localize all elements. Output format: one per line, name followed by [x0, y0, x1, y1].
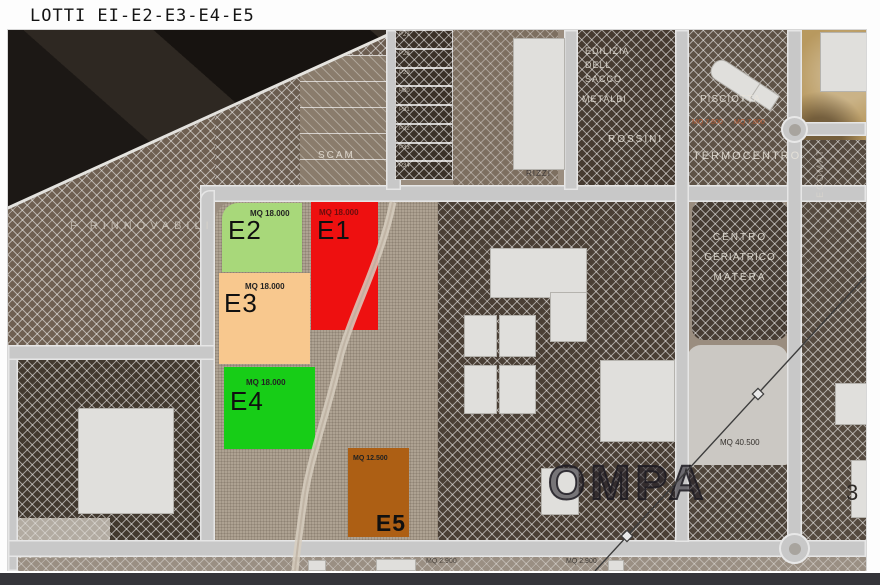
lot-id-label: E5	[376, 510, 406, 537]
roundabout-southeast	[779, 533, 810, 564]
shed-grid-4	[499, 365, 536, 414]
lot-area-label: MQ 12.500	[353, 455, 388, 462]
shed-south-strip-3	[608, 560, 624, 571]
lot-id-label: E2	[228, 215, 262, 246]
lot-E2: MQ 18.000 E2	[222, 203, 302, 272]
shed-south-strip-1	[376, 559, 416, 571]
p-lot-label: P33	[399, 145, 410, 151]
p-lot-label: P31	[399, 107, 410, 113]
label-mq-2900-b: MQ 2.900	[566, 558, 597, 565]
warehouse-center-top	[490, 248, 587, 298]
lot-E4: MQ 18.000 E4	[224, 367, 315, 449]
warehouse-rizzi	[513, 38, 565, 170]
p-lot-row: P28	[395, 49, 453, 68]
label-pisciotta: PISCIOTTA	[700, 94, 761, 105]
warehouse-center-ext	[550, 292, 587, 342]
label-edilizia-2: DELL	[585, 60, 612, 70]
p-lot-label: P30	[399, 88, 410, 94]
label-ompa-large: OMPA	[548, 456, 708, 511]
lot-E3: MQ 18.000 E3	[219, 273, 310, 364]
shed-grid-1	[464, 315, 497, 357]
label-mq-40500: MQ 40.500	[720, 438, 760, 447]
p-lot-row: P31	[395, 105, 453, 124]
label-edilizia-1: EDILIZIA	[585, 46, 630, 56]
e-lot-group: MQ 18.000 E1 MQ 18.000 E2 MQ 18.000 E3 M…	[215, 200, 438, 540]
label-centro-1: CENTRO	[692, 232, 788, 243]
p-lot-row: P32	[395, 124, 453, 143]
p-lot-label: P32	[399, 126, 410, 132]
p-lot-label: P27	[399, 32, 410, 38]
p-lot-row: P34	[395, 161, 453, 180]
lot-id-label: E1	[317, 215, 351, 246]
road-west-of-lots	[200, 190, 215, 557]
bottom-dark-bar	[0, 571, 880, 585]
label-mq-7800-a: MQ 7.800	[692, 119, 723, 126]
p-lot-label: P34	[399, 163, 410, 169]
label-centro-3: MATERA	[692, 272, 788, 283]
label-rossini: ROSSINI	[608, 134, 663, 145]
label-edilizia-3: SACCO	[585, 74, 622, 84]
lot-E5: MQ 12.500 E5	[348, 448, 409, 537]
label-right-3: 3	[846, 480, 858, 506]
road-east-vertical	[787, 30, 802, 542]
block-centro-geriatrico	[692, 200, 788, 340]
page-title: LOTTI EI-E2-E3-E4-E5	[30, 6, 255, 26]
label-ecomat: ECOMAT	[815, 143, 825, 203]
warehouse-southwest	[78, 408, 174, 514]
p-lot-row: P29	[395, 68, 453, 87]
label-metalbi: METALBI	[582, 94, 627, 104]
road-left-horizontal	[8, 345, 215, 360]
lot-E1: MQ 18.000 E1	[311, 202, 378, 330]
label-f-rinnovabili: F RINNOVABILI	[70, 220, 214, 232]
p-lot-label: P28	[399, 51, 410, 57]
p-lot-column: P27P28P29P30P31P32P33P34	[395, 30, 453, 180]
road-left-edge	[8, 345, 18, 571]
label-termocentro: TERMOCENTRO	[693, 150, 801, 162]
p-lot-row: P30	[395, 86, 453, 105]
p-lot-row: P27	[395, 30, 453, 49]
label-mq-2900-a: MQ 2.900	[426, 558, 457, 565]
roundabout-northeast	[781, 116, 808, 143]
p-lot-label: P29	[399, 70, 410, 76]
warehouse-center-east	[600, 360, 675, 442]
road-top-b	[564, 30, 578, 190]
shed-grid-2	[499, 315, 536, 357]
shed-grid-3	[464, 365, 497, 414]
building-top-right	[820, 32, 866, 92]
shed-south-strip-2	[308, 560, 326, 571]
label-mq-7800-b: MQ 7.800	[734, 119, 765, 126]
label-rizzi: RIZZI	[526, 169, 551, 178]
parcel-mq40500	[687, 345, 788, 465]
road-bottom-horizontal	[8, 540, 866, 557]
building-east-1	[835, 383, 866, 425]
label-centro-2: GERIATRICO	[692, 252, 788, 263]
lot-id-label: E3	[224, 288, 258, 319]
lot-id-label: E4	[230, 386, 264, 417]
plan-screenshot-root: LOTTI EI-E2-E3-E4-E5	[0, 0, 880, 585]
p-lot-row: P33	[395, 143, 453, 162]
site-plan-map: P27P28P29P30P31P32P33P34 MQ 18.000 E1 MQ…	[8, 30, 866, 571]
label-scam: SCAM	[318, 150, 355, 161]
